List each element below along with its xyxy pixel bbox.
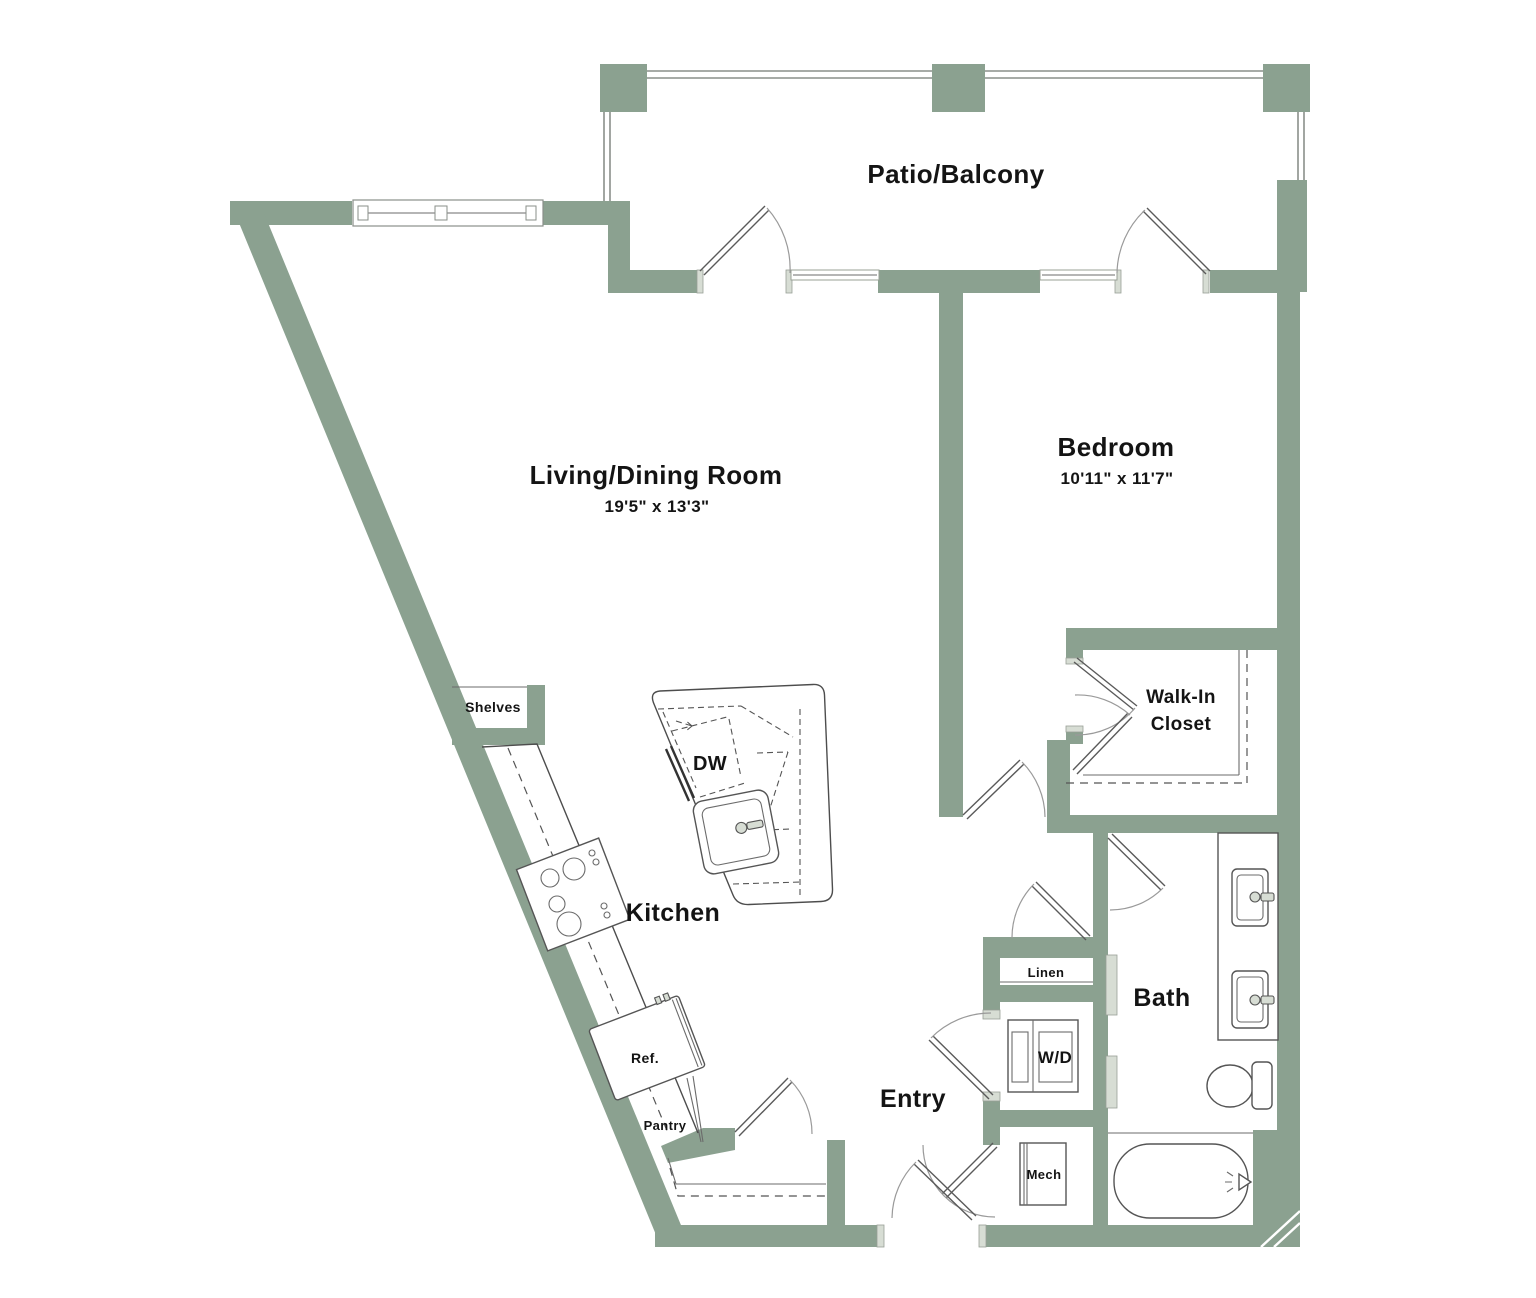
mech-label: Mech [1027, 1167, 1062, 1182]
dishwasher-label: DW [693, 753, 727, 775]
pantry-label: Pantry [644, 1118, 687, 1133]
linen-label: Linen [1028, 965, 1065, 980]
living-room-label: Living/Dining Room [530, 460, 783, 490]
bath-door [1108, 834, 1165, 910]
kitchen-label: Kitchen [626, 899, 720, 927]
walls [230, 180, 1307, 1247]
bedroom-dims: 10'11" x 11'7" [1060, 469, 1173, 488]
washer-dryer-label: W/D [1038, 1048, 1072, 1067]
mech-door [923, 1143, 997, 1217]
entry-closet-shelf [668, 1158, 826, 1196]
walk-in-closet-label-1: Walk-In [1146, 687, 1216, 708]
bath-label: Bath [1133, 984, 1190, 1012]
dishwasher-door [666, 746, 694, 801]
walk-in-closet-label-2: Closet [1151, 714, 1212, 735]
bath-wall-frame [1106, 1056, 1117, 1108]
island-sink-icon [692, 788, 781, 875]
entry-label: Entry [880, 1085, 946, 1113]
floorplan-canvas: Patio/Balcony Living/Dining Room 19'5" x… [0, 0, 1536, 1298]
hall-door [1012, 882, 1090, 940]
bath-wall-frame [1106, 955, 1117, 1015]
vanity [1218, 833, 1278, 1040]
patio-door-bedroom [1117, 208, 1210, 274]
bedroom-door [963, 760, 1045, 819]
living-room-window [353, 200, 543, 226]
refrigerator-label: Ref. [631, 1050, 659, 1066]
shelves-label: Shelves [465, 699, 521, 715]
patio-door-living [700, 206, 790, 275]
toilet-icon [1207, 1062, 1272, 1109]
entry-door [892, 1160, 976, 1220]
floorplan-page: Patio/Balcony Living/Dining Room 19'5" x… [0, 0, 1536, 1298]
bedroom-label: Bedroom [1058, 432, 1175, 462]
living-room-dims: 19'5" x 13'3" [604, 497, 709, 516]
kitchen-island [652, 684, 832, 904]
entry-closet-door [735, 1078, 812, 1136]
walk-in-closet-doors [1073, 658, 1137, 774]
patio-label: Patio/Balcony [867, 159, 1044, 189]
bathtub-icon [1108, 1133, 1253, 1218]
